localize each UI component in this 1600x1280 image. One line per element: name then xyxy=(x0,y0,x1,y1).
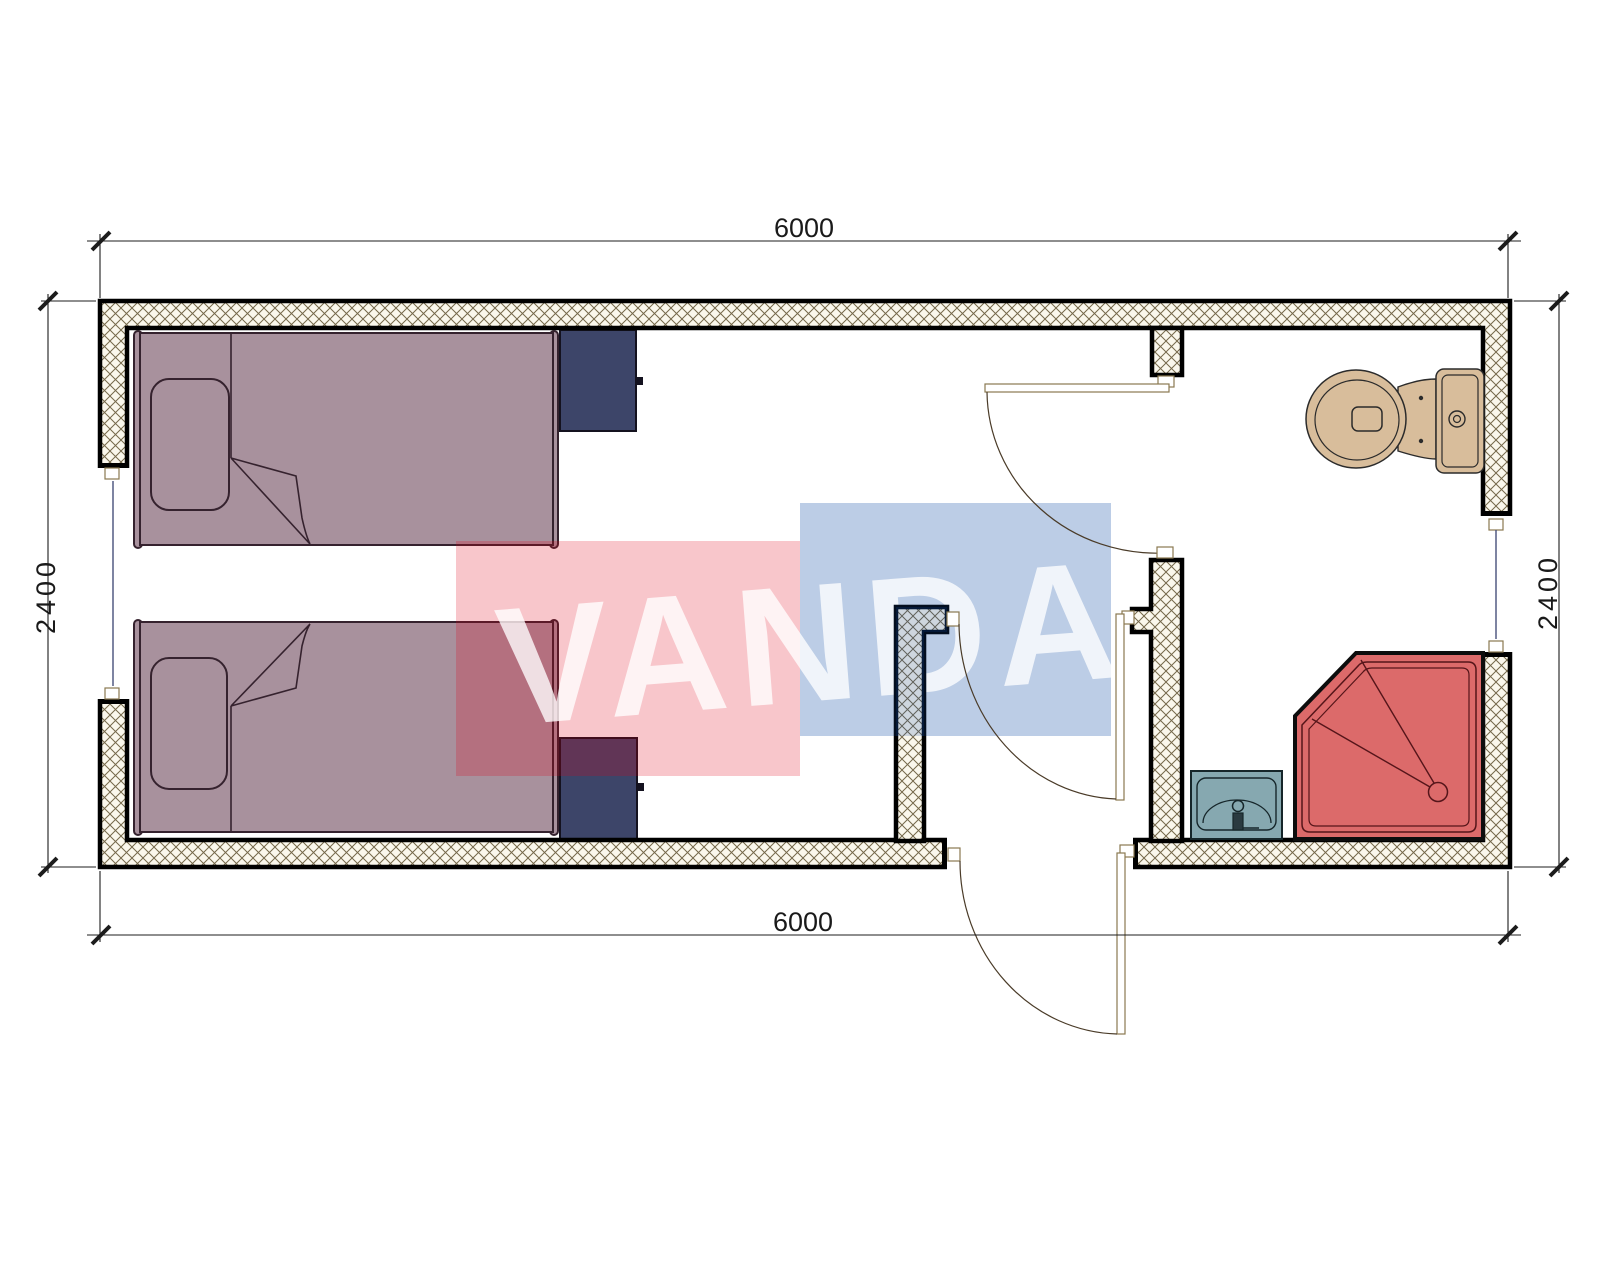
svg-text:2400: 2400 xyxy=(31,558,61,634)
svg-text:6000: 6000 xyxy=(774,213,834,243)
svg-text:2400: 2400 xyxy=(1533,554,1563,630)
svg-text:6000: 6000 xyxy=(773,907,833,937)
